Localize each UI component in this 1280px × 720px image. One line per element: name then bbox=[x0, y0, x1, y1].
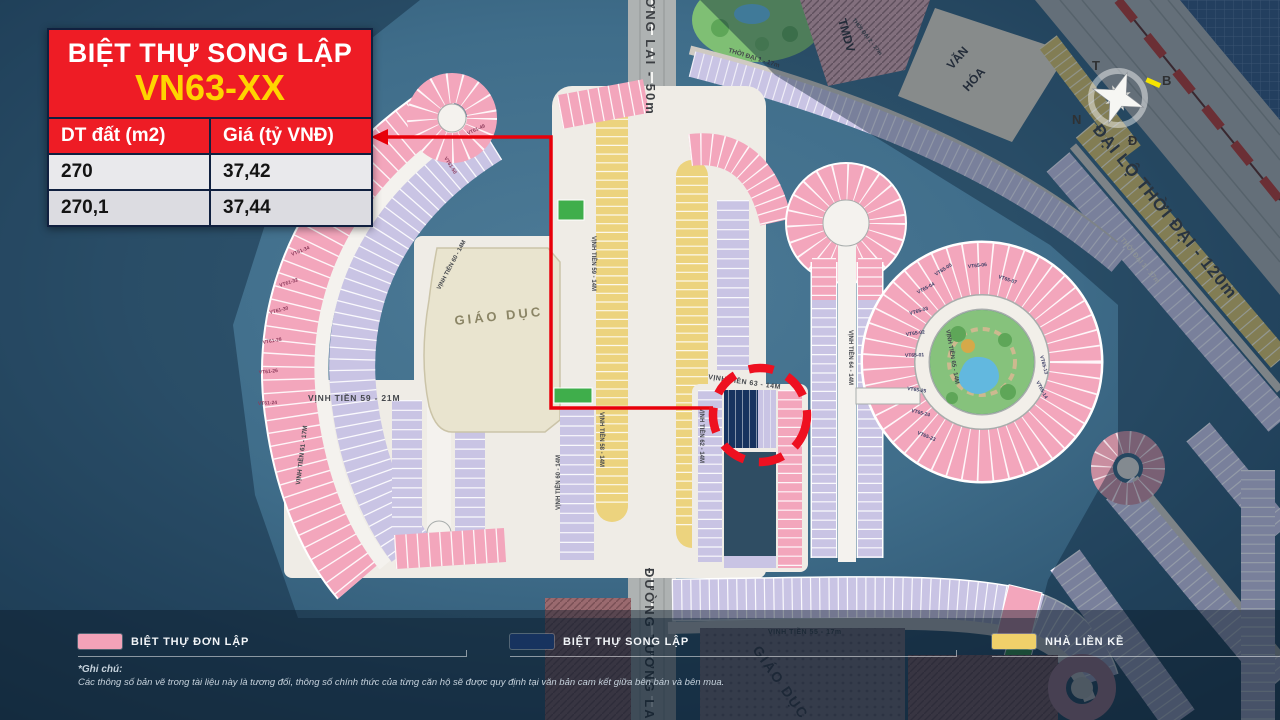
legend-item-don-lap: BIỆT THỰ ĐƠN LẬP bbox=[78, 634, 249, 649]
legend-swatch-pink bbox=[78, 634, 122, 649]
price-table: DT đất (m2) Giá (tỷ VNĐ) 270 37,42 270,1… bbox=[47, 117, 373, 227]
compass-label-t: T bbox=[1092, 58, 1100, 73]
compass-label-d: Đ bbox=[1128, 133, 1137, 148]
legend-item-song-lap: BIỆT THỰ SONG LẬP bbox=[510, 634, 689, 649]
legend-label: NHÀ LIỀN KỀ bbox=[1045, 636, 1124, 648]
cell-area: 270,1 bbox=[48, 190, 210, 226]
road-label-vt59-14: VỊNH TIỀN 59 - 14M bbox=[590, 236, 597, 291]
col-header-area: DT đất (m2) bbox=[48, 118, 210, 154]
legend: BIỆT THỰ ĐƠN LẬP BIỆT THỰ SONG LẬP NHÀ L… bbox=[0, 612, 1280, 720]
cell-area: 270 bbox=[48, 154, 210, 190]
footnote-title: *Ghi chú: bbox=[78, 664, 724, 675]
legend-item-lien-ke: NHÀ LIỀN KỀ bbox=[992, 634, 1124, 649]
compass-label-b: B bbox=[1162, 73, 1171, 88]
col-header-price: Giá (tỷ VNĐ) bbox=[210, 118, 372, 154]
svg-text:VT61-24: VT61-24 bbox=[258, 400, 278, 407]
road-label-vt64-14: VỊNH TIỀN 64 - 14M bbox=[847, 330, 854, 385]
legend-divider-tick bbox=[466, 650, 467, 657]
road-label-vt58-14: VỊNH TIỀN 58 - 14M bbox=[598, 412, 605, 467]
masterplan-screenshot: ĐẠI LỘ THỜI ĐẠI - 120m THỜI ĐẠI 1 - 17m … bbox=[0, 0, 1280, 720]
panel-title: BIỆT THỰ SONG LẬP bbox=[53, 38, 367, 69]
info-panel: BIỆT THỰ SONG LẬP VN63-XX DT đất (m2) Gi… bbox=[47, 28, 373, 227]
legend-divider bbox=[992, 656, 1280, 657]
cell-price: 37,44 bbox=[210, 190, 372, 226]
road-label-vt60-south: VỊNH TIỀN 60 - 14M bbox=[555, 455, 562, 510]
footnote-text: Các thông số bản vẽ trong tài liệu này l… bbox=[78, 677, 724, 688]
legend-label: BIỆT THỰ ĐƠN LẬP bbox=[131, 636, 249, 648]
road-label-vt59-21: VỊNH TIỀN 59 - 21M bbox=[308, 393, 400, 403]
footnote: *Ghi chú: Các thông số bản vẽ trong tài … bbox=[78, 664, 724, 688]
legend-divider bbox=[510, 656, 956, 657]
pink-cap-west bbox=[560, 96, 646, 112]
road-label-tuong-lai-top: ĐƯỜNG TƯƠNG LAI - 50m bbox=[643, 0, 658, 116]
legend-swatch-navy bbox=[510, 634, 554, 649]
legend-swatch-yellow bbox=[992, 634, 1036, 649]
legend-divider bbox=[78, 656, 466, 657]
road-label-vt62-14: VỊNH TIỀN 62 - 14M bbox=[698, 408, 705, 463]
panel-code: VN63-XX bbox=[53, 69, 367, 107]
table-row: 270 37,42 bbox=[48, 154, 372, 190]
svg-text:VT65-01: VT65-01 bbox=[905, 352, 925, 359]
table-row: 270,1 37,44 bbox=[48, 190, 372, 226]
green-lot-a bbox=[558, 200, 584, 220]
panel-header: BIỆT THỰ SONG LẬP VN63-XX bbox=[47, 28, 373, 117]
compass-label-n: N bbox=[1072, 112, 1081, 127]
cell-price: 37,42 bbox=[210, 154, 372, 190]
green-lot-b bbox=[554, 388, 592, 403]
legend-label: BIỆT THỰ SONG LẬP bbox=[563, 636, 689, 648]
price-table-header-row: DT đất (m2) Giá (tỷ VNĐ) bbox=[48, 118, 372, 154]
legend-divider-tick bbox=[956, 650, 957, 657]
